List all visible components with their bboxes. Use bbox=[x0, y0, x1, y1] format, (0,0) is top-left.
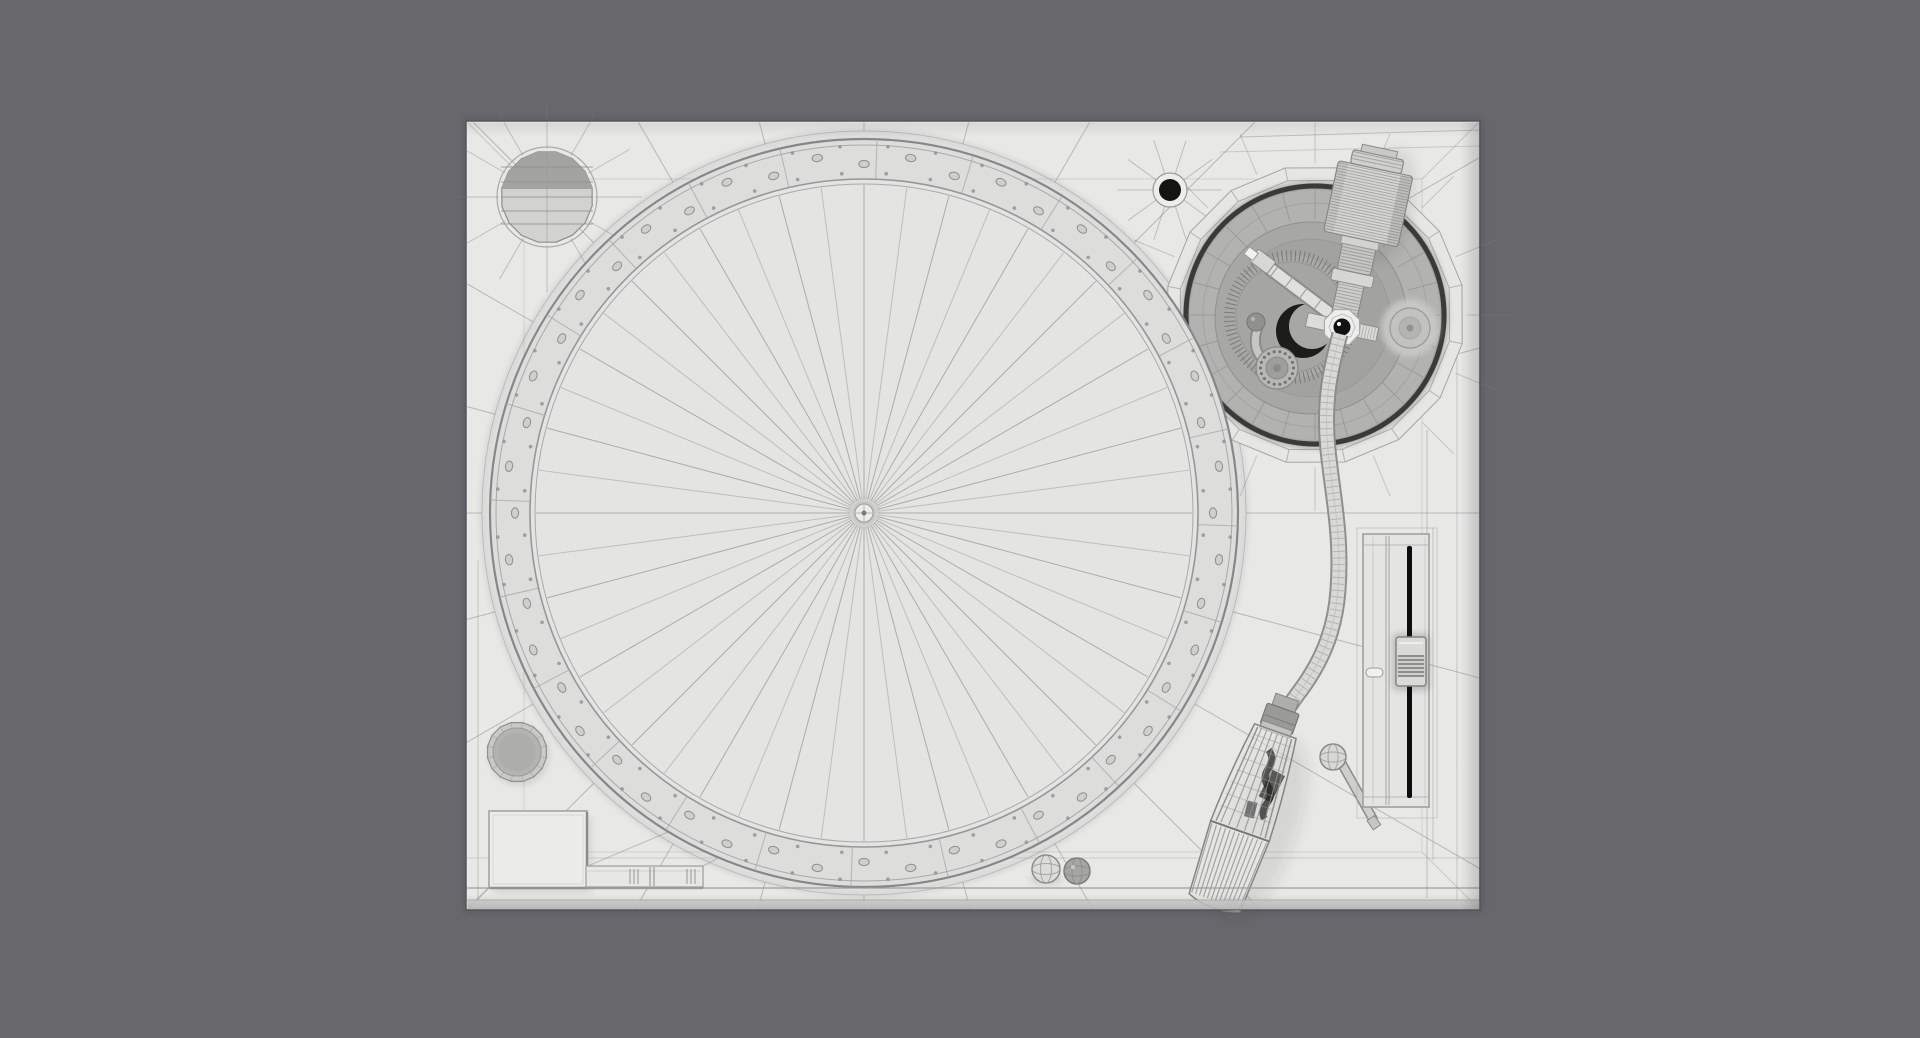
arm-rest-button[interactable] bbox=[1381, 299, 1439, 357]
pitch-zero-marker bbox=[1366, 668, 1383, 677]
adapter-recess bbox=[497, 147, 597, 247]
start-stop-button[interactable] bbox=[489, 811, 587, 888]
speed-select-buttons[interactable] bbox=[586, 866, 703, 889]
plinth-hole bbox=[1153, 173, 1187, 207]
render-canvas bbox=[0, 0, 1920, 1038]
turntable-render bbox=[0, 0, 1920, 1038]
fader-knob[interactable] bbox=[1396, 637, 1426, 686]
stylus-light-knob[interactable] bbox=[1032, 855, 1060, 883]
power-knob[interactable] bbox=[488, 723, 547, 782]
platter bbox=[490, 139, 1238, 887]
stylus-light-button[interactable] bbox=[1064, 858, 1090, 884]
spindle bbox=[855, 504, 873, 522]
